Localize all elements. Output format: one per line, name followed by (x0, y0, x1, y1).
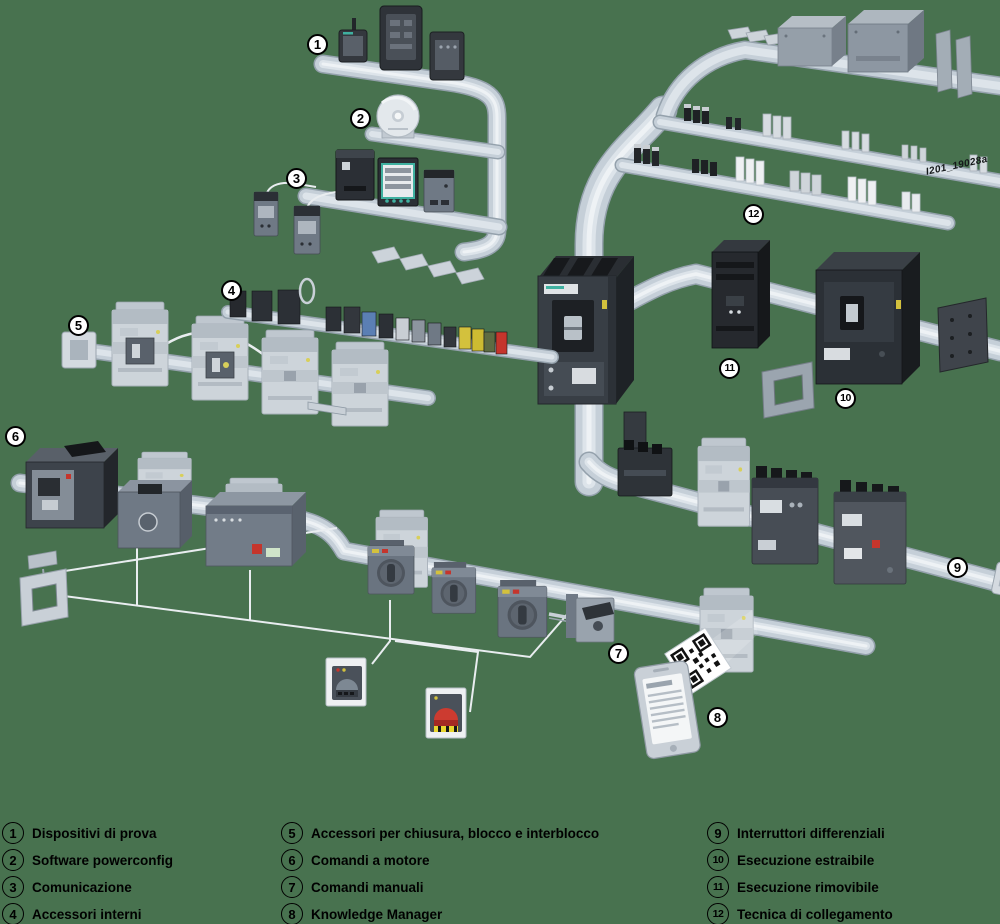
callout-5: 5 (68, 315, 89, 336)
wire-loop-accessory (300, 279, 314, 303)
main-circuit-breaker (538, 256, 634, 404)
legend-label: Accessori per chiusura, blocco e interbl… (311, 826, 599, 841)
door-handle-emergency (426, 688, 466, 738)
legend-item: 11Esecuzione rimovibile (707, 876, 893, 898)
callout-number: 2 (357, 112, 364, 125)
callout-6: 6 (5, 426, 26, 447)
legend-column-3: 9Interruttori differenziali 10Esecuzione… (707, 822, 893, 924)
legend-label: Interruttori differenziali (737, 826, 885, 841)
legend-number: 1 (2, 822, 24, 844)
callout-4: 4 (221, 280, 242, 301)
callout-number: 7 (615, 647, 622, 660)
door-handle-gray (326, 658, 366, 706)
callout-11: 11 (719, 358, 740, 379)
rotary-operator (432, 562, 476, 613)
legend-number: 7 (281, 876, 303, 898)
legend-item: 6Comandi a motore (281, 849, 599, 871)
legend-label: Comunicazione (32, 880, 132, 895)
rotary-operator (498, 580, 547, 637)
callout-1: 1 (307, 34, 328, 55)
callout-number: 3 (293, 172, 300, 185)
callout-2: 2 (350, 108, 371, 129)
legend-number: 11 (707, 876, 729, 898)
callout-number: 6 (12, 430, 19, 443)
door-frame-cutout (762, 362, 814, 418)
callout-number: 5 (75, 319, 82, 332)
ghost-breaker (262, 330, 318, 414)
callout-number: 11 (724, 363, 734, 374)
legend-label: Software powerconfig (32, 853, 173, 868)
legend-label: Comandi manuali (311, 880, 424, 895)
legend-number: 6 (281, 849, 303, 871)
callout-number: 4 (228, 284, 235, 297)
callout-7: 7 (608, 643, 629, 664)
legend-number: 4 (2, 903, 24, 924)
legend-item: 1Dispositivi di prova (2, 822, 173, 844)
legend-item: 2Software powerconfig (2, 849, 173, 871)
busbar-adapter-box-large (848, 10, 924, 72)
callout-number: 12 (748, 209, 759, 220)
motor-operator-controls (206, 492, 306, 566)
ghost-breaker (698, 438, 750, 526)
withdrawable-breaker (816, 252, 920, 384)
mounting-plate (938, 298, 988, 372)
plugin-breaker (712, 240, 770, 348)
power-meter (378, 158, 418, 206)
current-transformer (618, 412, 672, 496)
motor-operator-dark (26, 441, 118, 528)
callout-3: 3 (286, 168, 307, 189)
legend-column-2: 5Accessori per chiusura, blocco e interb… (281, 822, 599, 924)
legend-column-1: 1Dispositivi di prova 2Software powercon… (2, 822, 173, 924)
legend-item: 7Comandi manuali (281, 876, 599, 898)
rotary-operator (368, 540, 414, 594)
legend-item: 10Esecuzione estraibile (707, 849, 893, 871)
software-disc-group (377, 95, 419, 138)
legend-number: 12 (707, 903, 729, 924)
legend-item: 9Interruttori differenziali (707, 822, 893, 844)
busbar-adapter-box (778, 16, 846, 66)
legend-label: Dispositivi di prova (32, 826, 157, 841)
legend-label: Comandi a motore (311, 853, 430, 868)
legend-item: 12Tecnica di collegamento (707, 903, 893, 924)
rcd-module (752, 466, 818, 564)
motor-operator (118, 480, 192, 548)
manual-operators-group (326, 510, 614, 738)
callout-12: 12 (743, 204, 764, 225)
legend-item: 5Accessori per chiusura, blocco e interb… (281, 822, 599, 844)
legend-number: 8 (281, 903, 303, 924)
callout-number: 9 (954, 561, 961, 574)
motor-operators-group (20, 441, 306, 626)
callout-number: 1 (314, 38, 321, 51)
legend-item: 3Comunicazione (2, 876, 173, 898)
rcd-module (834, 480, 906, 584)
callout-8: 8 (707, 707, 728, 728)
handle-wire (372, 600, 390, 664)
door-frame-cutout (20, 551, 68, 626)
legend-number: 2 (2, 849, 24, 871)
callout-number: 10 (840, 393, 851, 404)
accessories-overview-diagram: 1 2 3 4 5 6 7 8 9 10 11 12 I201_19028a 1… (0, 0, 1000, 924)
callout-10: 10 (835, 388, 856, 409)
callout-number: 8 (714, 711, 721, 724)
door-coupling-operator (549, 594, 614, 642)
legend-label: Esecuzione estraibile (737, 853, 874, 868)
legend-item: 8Knowledge Manager (281, 903, 599, 924)
legend-label: Tecnica di collegamento (737, 907, 893, 922)
legend-number: 9 (707, 822, 729, 844)
legend-number: 5 (281, 822, 303, 844)
legend-label: Knowledge Manager (311, 907, 442, 922)
legend-number: 10 (707, 849, 729, 871)
legend-number: 3 (2, 876, 24, 898)
legend-label: Accessori interni (32, 907, 142, 922)
legend-label: Esecuzione rimovibile (737, 880, 879, 895)
pipe-top-right (589, 50, 1000, 482)
legend-item: 4Accessori interni (2, 903, 173, 924)
callout-9: 9 (947, 557, 968, 578)
